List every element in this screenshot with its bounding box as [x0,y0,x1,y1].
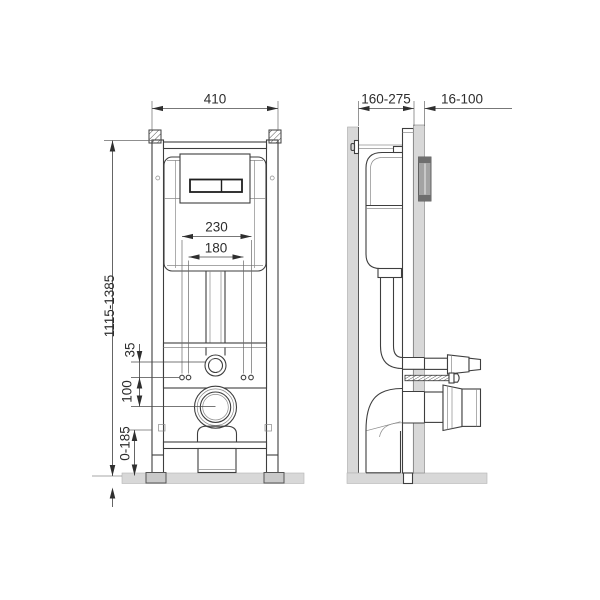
wall-bracket-left [149,130,161,143]
dim-width-label: 410 [204,92,227,107]
dim-outlet-offset-label: 100 [120,380,135,403]
frame-right-post [267,140,279,476]
flush-outlet-circle [205,355,226,376]
actuator-plate-side [419,157,432,201]
front-view: 410 230 180 1115-1385 [92,92,304,508]
technical-drawing: 410 230 180 1115-1385 [0,0,600,600]
dim-fixing-outer: 230 [182,220,252,240]
frame-foot-side [404,473,413,484]
waste-duct-front [198,449,236,473]
floor-section-side [347,473,487,484]
dim-fixing-inner: 180 [189,241,244,260]
wall-bracket-right [269,130,281,143]
dim-depth: 160-275 [359,92,415,127]
cistern-tank-side [366,147,403,278]
dim-width: 410 [152,92,278,132]
flush-valve-base [378,269,402,278]
dim-height-label: 1115-1385 [102,275,117,338]
frame-bottom-rail [164,442,267,449]
dim-wall-thickness: 16-100 [425,92,513,127]
dim-flush-offset-label: 35 [123,342,138,357]
dim-wall-thickness-label: 16-100 [441,92,483,107]
side-view: 160-275 16-100 [347,92,512,484]
flush-plate [180,154,250,203]
dim-fixing-inner-label: 180 [205,241,228,256]
frame-top-rail [164,142,267,149]
dim-depth-label: 160-275 [361,92,411,107]
dim-foot-adjust: 0-185 [118,426,153,475]
wall-section [348,127,359,473]
fill-valve-cap [394,147,403,153]
flush-pipe-side [381,278,403,369]
waste-outlet-circle [195,386,237,428]
frame-left-post [152,140,164,476]
dim-fixing-outer-label: 230 [205,220,228,235]
waste-elbow-side [366,389,402,473]
flush-buttons [190,180,242,193]
dim-foot-adjust-label: 0-185 [118,426,133,461]
